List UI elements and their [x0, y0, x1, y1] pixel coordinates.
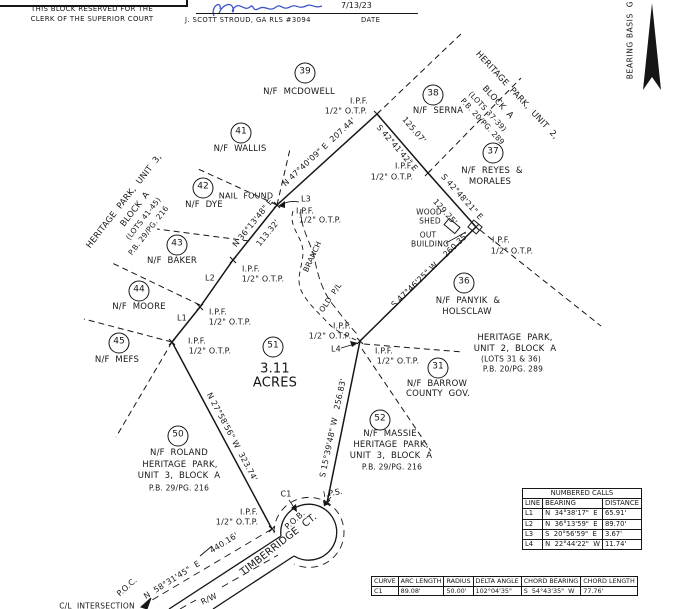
owner-barrow-2: COUNTY GOV.	[406, 390, 470, 400]
calls-table-row: L3S 20°56'59" E3.67'	[523, 529, 642, 539]
curve-table-cell: S 54°43'35" W	[521, 586, 581, 596]
line-l1: L1	[177, 313, 187, 322]
lot-marker-36: 36	[454, 273, 475, 294]
calls-table-cell: L3	[523, 529, 543, 539]
curve-table-header: RADIUS	[444, 577, 473, 587]
curve-table-cell: 50.00'	[444, 586, 473, 596]
sub-hp2b-3: (LOTS 31 & 36)	[481, 356, 541, 365]
curve-table-header: CHORD BEARING	[521, 577, 581, 587]
otp-l4-b: 1/2" O.T.P.	[377, 356, 419, 365]
calls-table-cell: 65.91'	[602, 509, 641, 519]
sub-hp3b-3: P.B. 29/PG. 216	[362, 464, 422, 473]
curve-table-cell: 77.76'	[581, 586, 638, 596]
owner-panyik-1: N/F PANYIK &	[436, 297, 500, 307]
curve-table-header: CHORD LENGTH	[581, 577, 638, 587]
curve-table-cell: 89.08'	[398, 586, 444, 596]
survey-plat-page: THIS BLOCK RESERVED FOR THE CLERK OF THE…	[0, 0, 674, 609]
lot-marker-41: 41	[231, 123, 252, 144]
sub-hp3r-2: UNIT 3, BLOCK A	[138, 472, 220, 482]
owner-panyik-2: HOLSCLAW	[442, 308, 491, 318]
ipf-l1: I.P.F.	[209, 307, 227, 316]
calls-table-cell: N 22°44'22" W	[543, 539, 603, 549]
calls-table-row: L4N 22°44'22" W11.74'	[523, 539, 642, 549]
lot-marker-52: 52	[370, 410, 391, 431]
calls-table-cell: 89.70'	[602, 519, 641, 529]
curve-table: CURVEARC LENGTHRADIUSDELTA ANGLECHORD BE…	[371, 576, 638, 596]
calls-table-cell: N 34°38'17" E	[543, 509, 603, 519]
owner-reyes-1: N/F REYES &	[461, 167, 522, 177]
lot-marker-44: 44	[129, 281, 150, 302]
line-l4: L4	[331, 344, 341, 353]
lot-marker-31: 31	[428, 358, 449, 379]
ipf-c: I.P.F.	[492, 235, 510, 244]
curve-table-cell: 102°04'35"	[473, 586, 521, 596]
certification-date: 7/13/23	[341, 1, 372, 10]
calls-table-cell: S 20°56'59" E	[543, 529, 603, 539]
numbered-calls-table: NUMBERED CALLSLINEBEARINGDISTANCEL1N 34°…	[522, 488, 642, 550]
calls-table-title: NUMBERED CALLS	[523, 489, 642, 499]
owner-serna: N/F SERNA	[413, 107, 463, 117]
owner-moore: N/F MOORE	[112, 303, 166, 313]
cl-intersection: C/L INTERSECTION	[59, 603, 135, 609]
curve-table-row: C189.08'50.00'102°04'35"S 54°43'35" W77.…	[372, 586, 638, 596]
clerk-note-line2: CLERK OF THE SUPERIOR COURT	[31, 15, 154, 23]
lot-marker-45: 45	[109, 333, 130, 354]
sub-hp2b-1: HERITAGE PARK,	[477, 334, 552, 344]
calls-table-header: DISTANCE	[602, 499, 641, 509]
line-l3: L3	[301, 194, 311, 203]
otp-c: 1/2" O.T.P.	[491, 246, 533, 255]
otp-nail: 1/2" O.T.P.	[299, 215, 341, 224]
curve-table-header: CURVE	[372, 577, 399, 587]
signature-stroke	[213, 5, 322, 16]
date-label: DATE	[361, 16, 380, 24]
sub-hp3r-3: P.B. 29/PG. 216	[149, 485, 209, 494]
calls-table-cell: L2	[523, 519, 543, 529]
surveyor-name: J. SCOTT STROUD, GA RLS #3094	[185, 16, 311, 24]
ipf-top: I.P.F.	[350, 96, 368, 105]
otp-top: 1/2" O.T.P.	[325, 106, 367, 115]
owner-massie: N/F MASSIE	[363, 430, 417, 440]
calls-table-cell: 11.74'	[602, 539, 641, 549]
sub-hp3b-2: UNIT 3, BLOCK A	[350, 452, 432, 462]
north-arrow-icon	[643, 3, 661, 90]
otp-mefs: 1/2" O.T.P.	[189, 346, 231, 355]
otp-pob: 1/2" O.T.P.	[216, 517, 258, 526]
otp-l4-a: 1/2" O.T.P.	[309, 331, 351, 340]
out-building-2: BUILDING	[411, 241, 449, 250]
owner-reyes-2: MORALES	[469, 178, 511, 188]
ipf-l4-a: I.P.F.	[333, 321, 351, 330]
sub-hp3r-1: HERITAGE PARK,	[142, 461, 217, 471]
lot-marker-39: 39	[295, 63, 316, 84]
ipf-pob: I.P.F.	[240, 507, 258, 516]
calls-table-row: L1N 34°38'17" E65.91'	[523, 509, 642, 519]
curve-c1-label: C1	[280, 489, 291, 498]
sub-hp2b-4: P.B. 20/PG. 289	[483, 366, 543, 375]
curve-table-header: DELTA ANGLE	[473, 577, 521, 587]
calls-table-cell: L1	[523, 509, 543, 519]
bearing-basis-note: BEARING BASIS G	[626, 1, 635, 79]
line-l2: L2	[205, 273, 215, 282]
calls-table-row: L2N 36°13'59" E89.70'	[523, 519, 642, 529]
owner-wallis: N/F WALLIS	[214, 145, 267, 155]
ipf-nail: I.P.F.	[296, 206, 314, 215]
clerk-reservation-note: THIS BLOCK RESERVED FOR THE CLERK OF THE…	[14, 5, 170, 25]
ipf-l2: I.P.F.	[242, 264, 260, 273]
owner-dye: N/F DYE	[185, 201, 223, 211]
owner-baker: N/F BAKER	[147, 257, 197, 267]
lot-marker-42: 42	[193, 178, 214, 199]
owner-mefs: N/F MEFS	[95, 356, 139, 366]
calls-table-header: BEARING	[543, 499, 603, 509]
calls-table-cell: L4	[523, 539, 543, 549]
curve-table-cell: C1	[372, 586, 399, 596]
sub-hp2b-2: UNIT 2, BLOCK A	[474, 345, 556, 355]
lot-marker-38: 38	[423, 85, 444, 106]
curve-table-header: ARC LENGTH	[398, 577, 444, 587]
calls-table-cell: 3.67'	[602, 529, 641, 539]
owner-roland: N/F ROLAND	[150, 449, 208, 459]
ipf-b: I.P.F.	[395, 161, 413, 170]
lot-marker-43: 43	[167, 235, 188, 256]
lot-marker-37: 37	[483, 143, 504, 164]
otp-b: 1/2" O.T.P.	[371, 172, 413, 181]
sub-hp3b-1: HERITAGE PARK,	[353, 441, 428, 451]
otp-l2: 1/2" O.T.P.	[242, 274, 284, 283]
ipf-mefs: I.P.F.	[188, 336, 206, 345]
wood-shed-2: SHED	[419, 218, 441, 227]
ipf-l4-b: I.P.F.	[375, 346, 393, 355]
signature-line	[196, 13, 418, 14]
otp-l1: 1/2" O.T.P.	[209, 317, 251, 326]
calls-table-cell: N 36°13'59" E	[543, 519, 603, 529]
clerk-note-line1: THIS BLOCK RESERVED FOR THE	[31, 5, 153, 13]
owner-mcdowell: N/F MCDOWELL	[263, 88, 335, 98]
lot-marker-51: 51	[263, 337, 284, 358]
acreage-2: ACRES	[253, 377, 297, 392]
calls-table-header: LINE	[523, 499, 543, 509]
lot-marker-50: 50	[168, 426, 189, 447]
